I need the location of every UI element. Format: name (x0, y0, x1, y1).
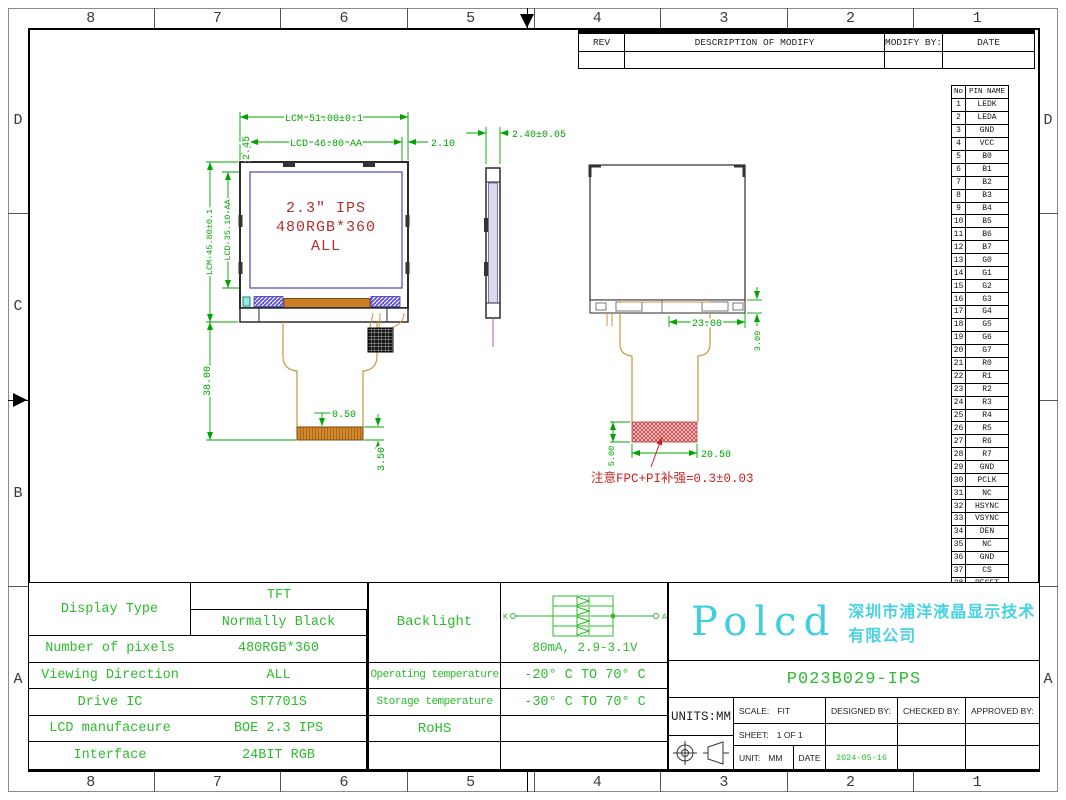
border-row-label: B (8, 400, 28, 586)
border-column-label: 5 (407, 772, 534, 792)
title-info-grid: UNITS:MM SCAL (669, 698, 1039, 769)
border-column-label: 4 (534, 772, 661, 792)
border-row-label (1038, 400, 1058, 586)
border-column-label: 8 (28, 8, 154, 28)
date-value: 2024-05-16 (826, 746, 898, 769)
display-type-value-1: TFT (191, 583, 367, 610)
drawing-sheet: 87654321 87654321 DCBA DA REV DESCRIPTIO… (0, 0, 1066, 800)
fpc-bonding-bar (284, 299, 370, 308)
back-view: 23.00 3.09 5.00 20.50 注意FPC+PI补强=0.3±0.0… (590, 165, 763, 486)
backlight-led-circuit: K A (501, 592, 669, 640)
border-column-label: 2 (787, 772, 914, 792)
connector-pad-left (254, 297, 283, 307)
designed-by-label: DESIGNED BY: (826, 698, 898, 723)
rohs-label: RoHS (369, 716, 501, 743)
border-column-label: 8 (28, 772, 154, 792)
dim-right-margin: 2.10 (431, 139, 455, 150)
sheet-value: 1 OF 1 (777, 730, 803, 740)
dim-conn-height: 3.09 (753, 331, 763, 351)
dim-fpc-length: 38.00 (203, 366, 214, 396)
dim-top-margin: 2.45 (242, 136, 253, 160)
border-row-label: A (1038, 586, 1058, 772)
display-type-label: Display Type (29, 583, 191, 636)
env-table: Backlight K A 80mA, 2.9-3.1V Oper (368, 582, 668, 770)
scale-cell: SCALE: FIT (734, 698, 826, 723)
storage-temp-value: -30° C TO 70° C (501, 689, 669, 716)
panel-size-label: 2.3″ IPS (286, 200, 366, 217)
panel-viewing-label: ALL (311, 238, 341, 255)
border-column-label: 1 (913, 8, 1040, 28)
viewing-direction-value: ALL (191, 663, 367, 690)
rohs-value (501, 716, 669, 743)
dim-lcd-width: LCD 46.80 AA (290, 139, 362, 150)
bottom-glass-ledge (240, 308, 408, 322)
fpc-stiffener-note: 注意FPC+PI补强=0.3±0.03 (591, 470, 754, 486)
units-label: UNITS:MM (669, 698, 733, 736)
unit-label: UNIT: (739, 753, 760, 763)
pixels-value: 480RGB*360 (191, 636, 367, 663)
border-column-label: 5 (407, 8, 534, 28)
border-row-label: A (8, 586, 28, 772)
led-a-terminal: A (662, 613, 667, 622)
border-column-label: 4 (534, 8, 661, 28)
backlight-value: K A 80mA, 2.9-3.1V (501, 583, 669, 663)
brand-row: Polcd 深圳市浦洋液晶显示技术有限公司 (669, 583, 1039, 661)
center-mark-line-bottom (527, 772, 528, 792)
scale-label: SCALE: (739, 706, 769, 716)
dim-stiffener-height: 5.00 (607, 446, 617, 466)
dim-lcm-width: LCM 51.00±0.1 (285, 114, 363, 125)
center-mark-arrow-left (13, 393, 27, 407)
sheet-label: SHEET: (739, 730, 769, 740)
sheet-cell: SHEET: 1 OF 1 (734, 724, 826, 745)
storage-temp-label: Storage temperature (369, 689, 501, 716)
back-fpc-left-edge (620, 313, 632, 422)
interface-label: Interface (29, 742, 191, 769)
dim-stiffener-width: 20.50 (701, 450, 731, 461)
projection-symbol (669, 736, 733, 769)
date-label: DATE (794, 746, 826, 769)
border-column-labels-bottom: 87654321 (28, 772, 1040, 792)
dim-lcd-height: LCD 35.10 AA (223, 199, 233, 261)
border-column-label: 6 (280, 8, 407, 28)
side-view: 2.40±0.05 (466, 127, 566, 347)
dim-conn-width: 23.00 (692, 319, 722, 330)
dim-pitch: 0.50 (332, 410, 356, 421)
fpc-tail-left-edge (283, 322, 297, 427)
company-name: 深圳市浦洋液晶显示技术有限公司 (848, 598, 1039, 646)
border-column-label: 7 (154, 772, 281, 792)
display-type-value-2: Normally Black (191, 610, 367, 637)
panel-resolution-label: 480RGB*360 (276, 219, 376, 236)
center-mark-arrow-top (520, 14, 534, 28)
border-column-label: 7 (154, 8, 281, 28)
viewing-direction-label: Viewing Direction (29, 663, 191, 690)
brand-logo: Polcd (691, 599, 836, 645)
top-tab (363, 162, 375, 167)
scale-value: FIT (777, 706, 790, 716)
backlight-current: 80mA, 2.9-3.1V (532, 641, 637, 655)
led-k-terminal: K (503, 613, 508, 622)
lcd-manufacturer-label: LCD manufaceure (29, 716, 191, 743)
operating-temp-value: -20° C TO 70° C (501, 663, 669, 690)
dim-lcm-height: LCM 45.80±0.1 (205, 209, 215, 275)
backlight-label: Backlight (369, 583, 501, 663)
border-row-label (1038, 213, 1058, 399)
spec-table: Display Type TFT Normally Black Number o… (28, 582, 368, 770)
operating-temp-label: Operating temperature (369, 663, 501, 690)
border-column-labels-top: 87654321 (28, 8, 1040, 28)
border-row-label: D (8, 28, 28, 213)
pi-stiffener (632, 422, 697, 442)
unit-value: MM (768, 753, 782, 763)
drive-ic-value: ST7701S (191, 689, 367, 716)
interface-value: 24BIT RGB (191, 742, 367, 769)
connector-pad-right (371, 297, 400, 307)
checked-by-label: CHECKED BY: (898, 698, 966, 723)
drive-ic-label: Drive IC (29, 689, 191, 716)
dim-thickness: 2.40±0.05 (512, 130, 566, 141)
unit-cell: UNIT: MM (734, 746, 794, 769)
border-column-label: 1 (913, 772, 1040, 792)
border-row-label: D (1038, 28, 1058, 213)
mechanical-drawing: LCM 51.00±0.1 LCD 46.80 AA 2.10 2.45 LCM… (28, 28, 1040, 582)
approved-by-label: APPROVED BY: (966, 698, 1039, 723)
dim-tail: 3.50 (377, 447, 388, 471)
border-row-label: C (8, 213, 28, 399)
border-column-label: 3 (660, 8, 787, 28)
border-column-label: 3 (660, 772, 787, 792)
border-column-label: 6 (280, 772, 407, 792)
border-column-label: 2 (787, 8, 914, 28)
border-row-labels-right: DA (1038, 28, 1058, 772)
front-view: LCM 51.00±0.1 LCD 46.80 AA 2.10 2.45 LCM… (203, 112, 455, 471)
fpc-stiffener-grid (368, 328, 393, 352)
gold-fingers (297, 427, 363, 440)
pixels-label: Number of pixels (29, 636, 191, 663)
lcd-manufacturer-value: BOE 2.3 IPS (191, 716, 367, 743)
top-tab (283, 162, 295, 167)
part-number: P023B029-IPS (669, 661, 1039, 698)
back-outline (590, 165, 745, 300)
title-block: Polcd 深圳市浦洋液晶显示技术有限公司 P023B029-IPS UNITS… (668, 582, 1040, 770)
